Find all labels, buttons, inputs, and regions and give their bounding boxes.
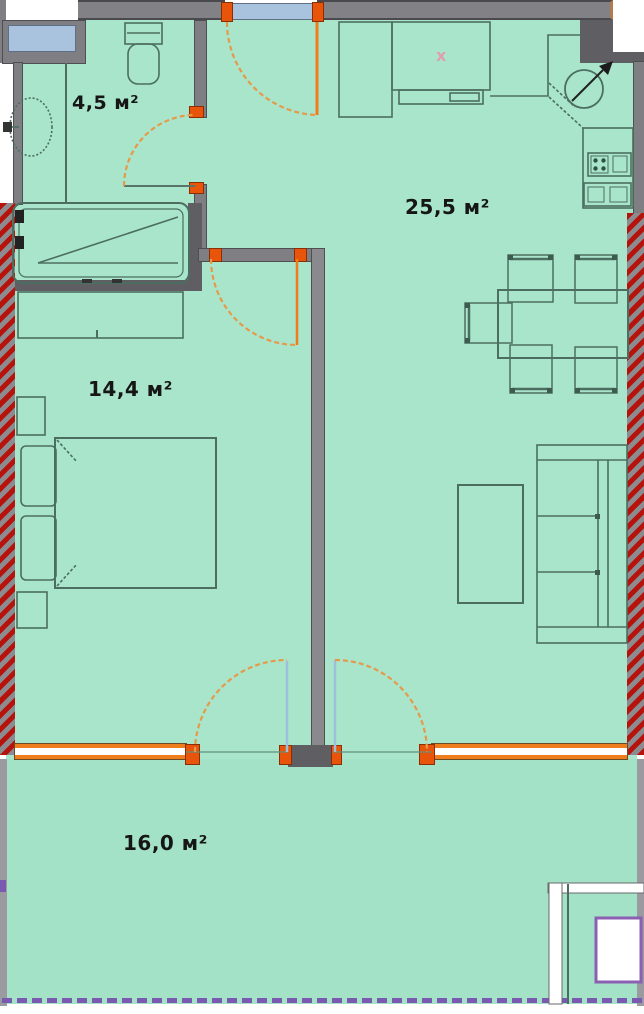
chair: [510, 345, 552, 393]
room-label-kitchen-living: 25,5 м²: [405, 195, 490, 219]
oven: [584, 183, 631, 206]
plan-graphics: [0, 0, 644, 1014]
bedroom-furniture: [17, 292, 216, 628]
balcony-hatch-opening: [596, 918, 641, 982]
stove: [583, 128, 633, 208]
balcony-door-right: [333, 660, 432, 752]
balcony-door-left: [186, 660, 288, 752]
washbasin: [3, 98, 52, 156]
kitchen-counter-edge: [490, 35, 580, 96]
coffee-table: [458, 485, 523, 603]
wardrobe: [18, 292, 183, 338]
bathtub: [13, 203, 189, 283]
dining-set: [465, 255, 628, 393]
chair: [575, 347, 617, 393]
floor-plan: 4,5 м² 25,5 м² 14,4 м² 16,0 м² x: [0, 0, 644, 1014]
kitchen-units: [339, 22, 633, 208]
washbasin-faucet: [3, 122, 12, 132]
dining-table: [498, 290, 628, 358]
bathroom-door: [124, 115, 195, 186]
balcony-corner-structure: [548, 883, 644, 1004]
bathtub-faucet: [15, 210, 24, 223]
chair: [465, 303, 512, 343]
kitchen-round-sink: [565, 61, 613, 108]
bedroom-door: [211, 259, 297, 345]
kitchen-sink-x-mark: x: [436, 46, 446, 65]
chair: [508, 255, 553, 302]
kitchen-cabinet-tall: [339, 22, 392, 117]
nightstand: [17, 397, 45, 435]
chair: [575, 255, 617, 303]
room-label-bathroom: 4,5 м²: [72, 92, 139, 114]
nightstand: [17, 592, 47, 628]
sofa: [537, 445, 627, 643]
toilet: [125, 23, 162, 84]
kitchen-dishwasher: [399, 90, 483, 104]
pillow: [21, 446, 56, 506]
entrance-door: [227, 22, 317, 115]
room-label-balcony: 16,0 м²: [123, 831, 208, 855]
bathroom-fixtures: [3, 23, 189, 283]
room-label-bedroom: 14,4 м²: [88, 377, 173, 401]
pillow: [21, 516, 56, 580]
double-bed: [21, 438, 216, 588]
